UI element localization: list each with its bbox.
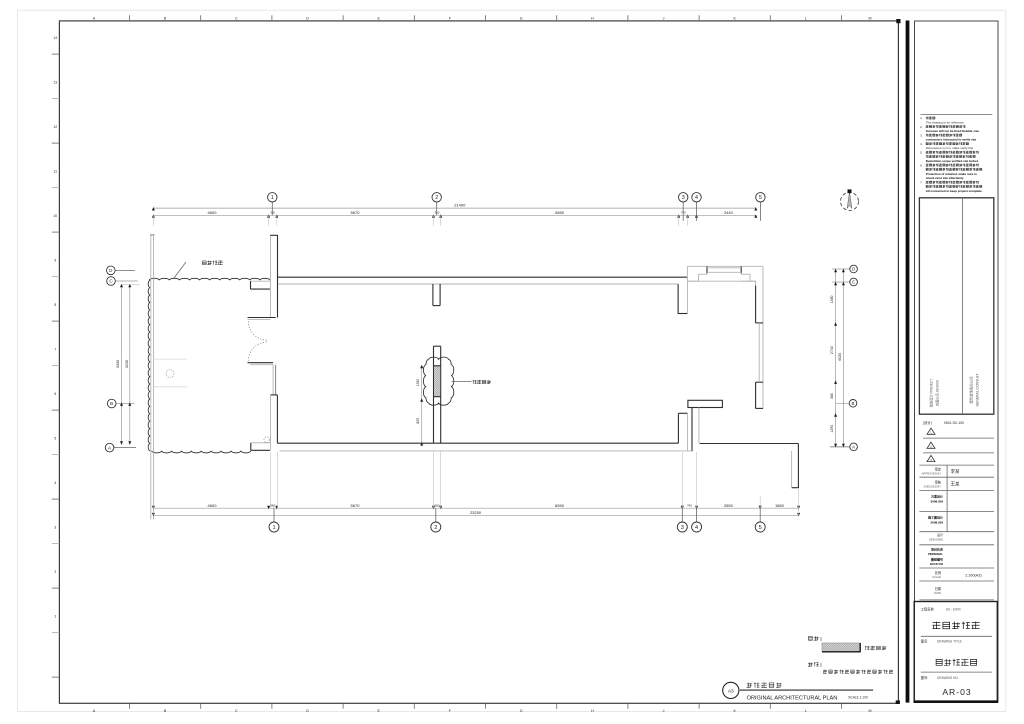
svg-text:项目负责: 项目负责 [931,547,943,552]
svg-text:G: G [520,16,523,20]
svg-text:审定: 审定 [935,467,942,472]
svg-text:360: 360 [435,504,440,508]
svg-text:4.: 4. [920,142,923,146]
svg-text:2008.209: 2008.209 [930,521,943,525]
svg-text:A3 - 100%: A3 - 100% [946,607,961,611]
svg-text:7: 7 [54,347,56,351]
svg-text:M: M [868,16,871,20]
svg-text:14: 14 [53,36,57,40]
svg-text:8: 8 [54,303,56,307]
svg-text:8650: 8650 [555,210,565,215]
svg-text:5: 5 [759,195,762,201]
svg-text:1:100(A3): 1:100(A3) [965,574,982,578]
svg-text:5.: 5. [920,150,923,154]
svg-text:0501-SX-100: 0501-SX-100 [944,421,964,425]
svg-text:DESIGNED: DESIGNED [929,538,943,542]
svg-text:J: J [663,16,665,20]
svg-text:AR-03: AR-03 [942,687,971,697]
svg-text:1480: 1480 [830,295,834,303]
svg-text:图名:: 图名: [921,639,928,644]
svg-text:4600: 4600 [208,210,218,215]
svg-text:13: 13 [53,80,57,84]
svg-text:check exist site effectively: check exist site effectively [926,176,964,180]
svg-text:1.: 1. [920,116,923,120]
svg-text:CHECKED BY: CHECKED BY [924,484,942,488]
svg-text:825: 825 [416,418,420,424]
svg-text:10: 10 [53,214,57,218]
svg-text:6.: 6. [920,163,923,167]
svg-text:比例: 比例 [935,570,941,575]
svg-text:D: D [306,16,309,20]
svg-text:1: 1 [54,614,56,618]
svg-text:审核: 审核 [935,479,942,484]
svg-text:1290: 1290 [830,425,834,433]
svg-text:Dimensions in mm, make verify: Dimensions in mm, make verify first [926,146,974,150]
svg-text:日期: 日期 [935,586,941,591]
svg-text:2.: 2. [920,125,923,129]
svg-text:4600: 4600 [208,503,218,508]
svg-text:1: 1 [272,525,275,531]
svg-text:装饰设计 PROJECT: 装饰设计 PROJECT [929,379,934,408]
svg-text:DATE: DATE [934,591,941,595]
svg-text:3: 3 [682,195,685,201]
svg-text:7.: 7. [920,180,923,184]
svg-text:Demolition scope verified site: Demolition scope verified site before [926,159,979,163]
svg-text:C: C [235,16,238,20]
svg-text:6: 6 [54,392,56,396]
svg-text:DRAWING TITLE: DRAWING TITLE [937,640,962,644]
svg-text:李某: 李某 [951,468,960,475]
svg-text:This drawing is for reference.: This drawing is for reference. [926,120,965,124]
svg-text:图号:: 图号: [921,675,928,680]
svg-text:图纸编号: 图纸编号 [931,557,943,562]
svg-text:2550: 2550 [724,503,734,508]
svg-text:5670: 5670 [351,210,361,215]
svg-text:A: A [852,445,855,450]
svg-text:M: M [868,709,871,713]
svg-text:2440: 2440 [724,210,734,215]
svg-text:GENERAL CONSULT: GENERAL CONSULT [976,374,980,407]
svg-text:DRAWING NO.: DRAWING NO. [937,676,959,680]
svg-text:contractors instructed to veri: contractors instructed to verify site [926,138,977,142]
svg-text:3230: 3230 [125,360,129,368]
svg-text:9: 9 [54,258,56,262]
svg-text:ORIGINAL ARCHITECTURAL PLAN: ORIGINAL ARCHITECTURAL PLAN [747,695,838,701]
svg-text:建筑装饰股份公司: 建筑装饰股份公司 [969,376,974,403]
svg-text:有限公司 DESIGN: 有限公司 DESIGN [935,379,940,406]
svg-text:L: L [805,709,807,713]
svg-text:360: 360 [435,211,440,215]
svg-text:23250: 23250 [470,510,482,515]
svg-text:4: 4 [695,525,698,531]
svg-text:6550: 6550 [555,503,565,508]
svg-text:6020: 6020 [838,353,842,361]
svg-text:3.: 3. [920,133,923,137]
svg-text:4: 4 [695,195,698,201]
svg-text:C: C [235,709,238,713]
svg-text:4: 4 [54,481,56,485]
svg-text:1: 1 [271,195,274,201]
svg-text:APPROVED BY: APPROVED BY [922,472,941,476]
svg-text:5: 5 [54,436,56,440]
svg-text:1330: 1330 [416,379,420,387]
svg-text:H: H [591,709,594,713]
svg-text:3: 3 [681,525,684,531]
svg-text:SCALE 1:100: SCALE 1:100 [848,696,868,700]
svg-text:BACK 532: BACK 532 [930,562,943,566]
svg-text:G: G [520,709,523,713]
svg-text:C: C [852,280,855,285]
svg-text:2: 2 [54,570,56,574]
svg-text:J: J [663,709,665,713]
svg-text:L: L [805,16,807,20]
svg-text:Increase will not be fixed fle: Increase will not be fixed flexible size [926,129,980,133]
svg-text:H: H [591,16,594,20]
svg-text:12: 12 [53,125,57,129]
svg-text:5670: 5670 [351,503,361,508]
svg-text:A3: A3 [728,688,734,694]
svg-text:360: 360 [270,504,275,508]
svg-text:5: 5 [759,525,762,531]
svg-text:SCALE: SCALE [932,575,941,579]
svg-text:740: 740 [687,504,692,508]
svg-text:B: B [110,401,113,406]
svg-text:2: 2 [434,525,437,531]
svg-text:11: 11 [54,169,58,173]
svg-text:2008.209: 2008.209 [930,500,943,504]
svg-text:2740: 2740 [830,346,834,354]
svg-text:21400: 21400 [454,202,466,207]
svg-text:方案设计: 方案设计 [931,494,943,499]
svg-text:施工图设计: 施工图设计 [928,515,943,520]
svg-text:2: 2 [435,195,438,201]
svg-text:D: D [306,709,309,713]
svg-text:(设计): (设计) [923,420,932,425]
svg-text:All concerned to keep project: All concerned to keep project complete [926,189,982,193]
svg-text:工程名称:: 工程名称: [921,606,935,611]
svg-text:PERSONAL: PERSONAL [928,552,943,556]
svg-text:380: 380 [830,393,834,399]
svg-text:3: 3 [54,525,56,529]
svg-text:3330: 3330 [116,360,120,368]
svg-text:360: 360 [270,211,275,215]
svg-text:B: B [852,401,855,406]
svg-text:设计: 设计 [937,532,943,537]
svg-text:D: D [852,267,855,272]
svg-text:1580: 1580 [775,503,785,508]
